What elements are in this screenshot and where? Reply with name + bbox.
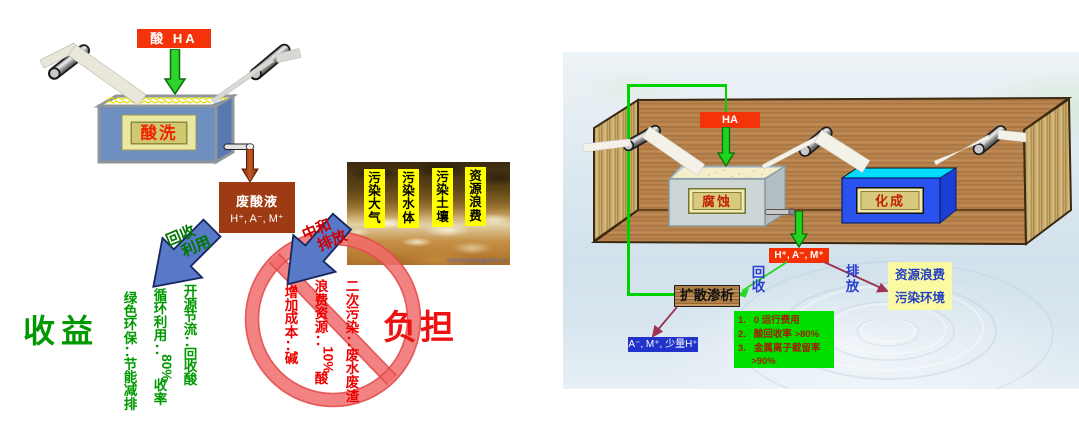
svg-text:酸洗: 酸洗 [141,123,178,143]
